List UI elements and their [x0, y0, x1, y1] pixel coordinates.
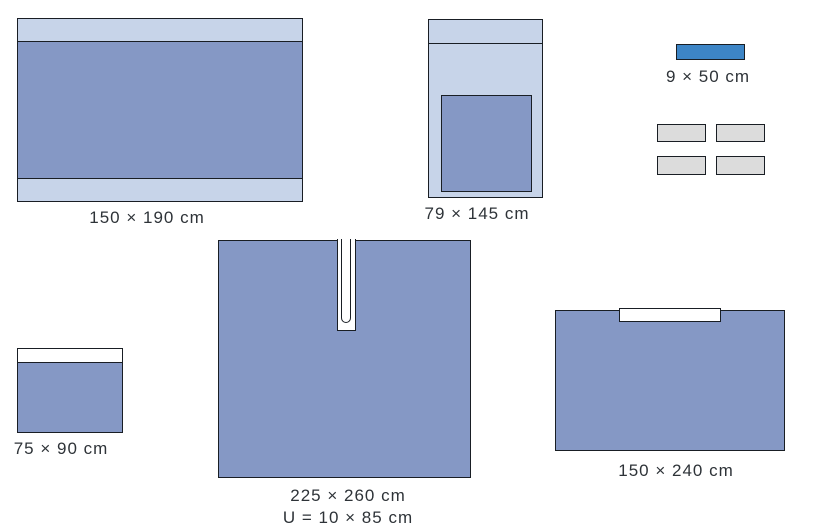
- drape-fold-band: [429, 20, 542, 44]
- drape-main-panel: [18, 41, 302, 179]
- adhesive-drape-150x190: [17, 18, 303, 202]
- surgical-drape-pack-diagram: 150 × 190 cm 79 × 145 cm 9 × 50 cm 75 × …: [0, 0, 813, 532]
- u-drape-225x260: [218, 240, 471, 478]
- notched-drape-150x240: [555, 310, 785, 451]
- towel: [657, 124, 706, 142]
- towel: [716, 156, 765, 175]
- drape-150x240-label: 150 × 240 cm: [576, 461, 776, 481]
- u-slit-inner-cut: [341, 239, 351, 323]
- u-cut-size-label: U = 10 × 85 cm: [248, 508, 448, 528]
- towel: [657, 156, 706, 175]
- adhesive-edge-strip: [18, 349, 122, 363]
- reinforced-drape-79x145: [428, 19, 543, 198]
- adhesive-drape-75x90: [17, 348, 123, 433]
- u-slit: [337, 239, 356, 331]
- adhesive-tape-strip: [676, 44, 745, 60]
- drape-79x145-label: 79 × 145 cm: [412, 204, 542, 224]
- towel: [716, 124, 765, 142]
- top-notch-strip: [619, 308, 721, 322]
- drape-150x190-label: 150 × 190 cm: [47, 208, 247, 228]
- tape-9x50-label: 9 × 50 cm: [648, 67, 768, 87]
- reinforcement-panel: [441, 95, 532, 192]
- drape-75x90-label: 75 × 90 cm: [0, 439, 122, 459]
- u-drape-size-label: 225 × 260 cm: [248, 486, 448, 506]
